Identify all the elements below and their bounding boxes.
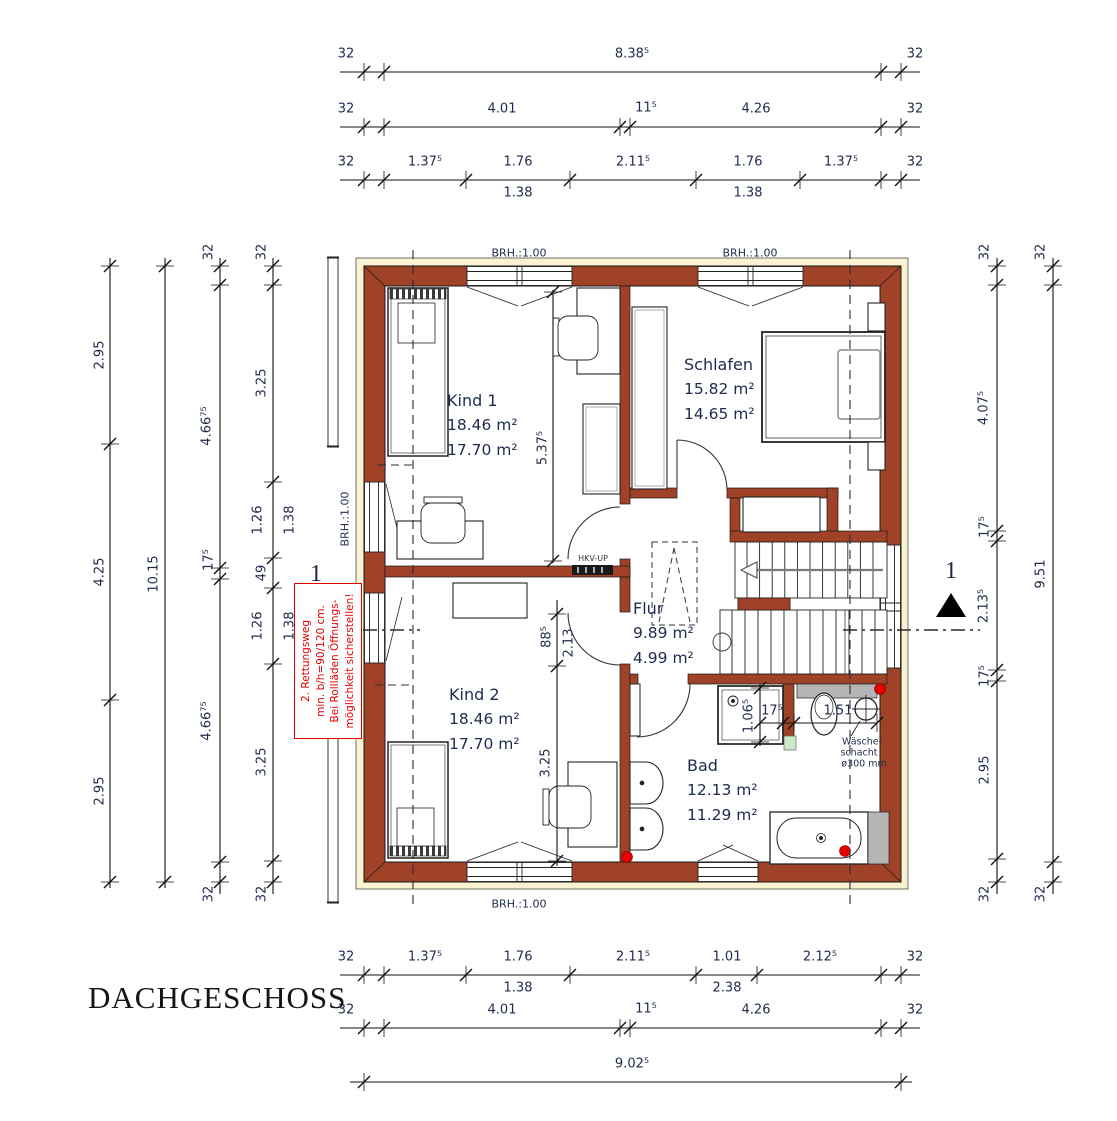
dim-label: 32 [338,951,355,964]
dim-label: 1.38 [284,506,297,535]
eave-detail [327,257,339,903]
room-area-net: 17.70 m² [449,732,520,757]
door-leaf-bad [630,684,640,736]
dim-label: 1.06⁵ [743,699,756,733]
chair [421,503,465,543]
sill-height-label: BRH.:1.00 [723,248,778,259]
pillow [397,808,434,846]
sill-height-label: BRH.:1.00 [492,248,547,259]
dim-label: 1.26 [252,612,265,641]
dim-label: 2.12⁵ [803,951,837,964]
dim-label: 17⁵ [761,705,783,718]
knee-wall [797,684,877,698]
room-name: Kind 2 [449,682,520,707]
nightstand [868,442,885,470]
room-area-gross: 15.82 m² [684,377,755,402]
dim-label: 17⁵ [979,516,992,538]
dim-label: 2.95 [94,777,107,806]
dim-label: 11⁵ [635,1003,657,1016]
room-label-schlafen: Schlafen 15.82 m² 14.65 m² [684,352,755,427]
dim-label: 17⁵ [203,549,216,571]
dim-label: 1.38 [734,187,763,200]
warning-line: 2. Rettungsweg [299,581,314,741]
dim-label: 4.01 [488,103,517,116]
duct-marker [784,736,796,750]
chair [558,316,598,360]
stair-spandrel-wall [738,598,790,610]
sideboard [743,497,820,532]
desk [453,583,527,618]
dim-label: 49 [256,565,269,582]
room-label-kind2: Kind 2 18.46 m² 17.70 m² [449,682,520,757]
room-area-gross: 18.46 m² [449,707,520,732]
dim-label: 32 [256,886,269,903]
dim-label: 1.76 [504,951,533,964]
dim-label: 32 [203,244,216,261]
room-label-kind1: Kind 1 18.46 m² 17.70 m² [447,388,518,463]
dim-label: 4.66⁷⁵ [201,406,214,445]
chair [549,786,591,828]
dim-label: 4.01 [488,1004,517,1017]
dim-label: 2.11⁵ [616,951,650,964]
section-marker-label: 1 [945,559,957,583]
tub-ledge [868,812,889,864]
dim-label: HKV-UP [578,555,608,563]
room-label-bad: Bad 12.13 m² 11.29 m² [687,753,758,828]
dim-label: 17⁵ [979,665,992,687]
dim-label: 2.95 [979,756,992,785]
pillow [398,303,435,343]
dim-label: 32 [979,244,992,261]
dim-label: 9.51 [1035,560,1048,589]
warning-line: möglichkeit sicherstellen! [343,581,358,741]
sill-height-label: BRH.:1.00 [492,899,547,910]
dim-label: 1.76 [734,156,763,169]
room-name: Schlafen [684,352,755,377]
dim-label: 1.37⁵ [824,156,858,169]
dim-label: 4.07⁵ [978,391,991,425]
room-area-gross: 18.46 m² [447,413,518,438]
dim-label: 2.13⁵ [978,589,991,623]
dim-label: 32 [338,156,355,169]
dim-label: 32 [256,244,269,261]
dim-label: 4.26 [742,103,771,116]
drawing-title: DACHGESCHOSS [88,980,346,1016]
warning-line: min. b/h=90/120 cm. [314,581,329,741]
dim-label: ø300 mm [841,759,886,769]
floorplan-sheet: 328.38⁵32324.0111⁵4.2632321.37⁵1.762.11⁵… [0,0,1117,1121]
dim-label: 32 [1035,886,1048,903]
bed-headboard [390,289,446,299]
room-area-net: 14.65 m² [684,402,755,427]
dim-label: 2.13 [563,629,576,658]
room-name: Flur [633,596,694,621]
room-area-net: 17.70 m² [447,438,518,463]
room-area-gross: 12.13 m² [687,778,758,803]
dim-label: 2.38 [713,982,742,995]
dim-label: 1.37⁵ [408,951,442,964]
room-area-net: 11.29 m² [687,803,758,828]
dim-label: 2.11⁵ [616,156,650,169]
dim-label: 2.95 [94,341,107,370]
dim-label: 3.25 [256,369,269,398]
dim-label: schacht [841,748,878,758]
room-name: Bad [687,753,758,778]
dim-label: 32 [203,886,216,903]
nightstand [868,303,885,331]
dim-label: 1.37⁵ [408,156,442,169]
rescue-route-warning: 2. Rettungsweg min. b/h=90/120 cm. Bei R… [294,583,362,739]
dim-label: 32 [1035,244,1048,261]
room-name: Kind 1 [447,388,518,413]
room-area-gross: 9.89 m² [633,621,694,646]
dim-label: 4.25 [94,558,107,587]
dim-label: 32 [979,886,992,903]
room-label-flur: Flur 9.89 m² 4.99 m² [633,596,694,671]
dim-label: 1.26 [252,506,265,535]
dim-label: 4.66⁷⁵ [201,701,214,740]
sink [630,762,663,804]
dim-label: 1.76 [504,156,533,169]
dim-label: 11⁵ [635,102,657,115]
dim-label: 3.25 [256,748,269,777]
section-marker-triangle [936,593,966,617]
dim-label: 4.26 [742,1004,771,1017]
dim-label: 32 [907,48,924,61]
sill-height-label: BRH.:1.00 [340,492,351,547]
room-area-net: 4.99 m² [633,646,694,671]
dim-label: 88⁵ [541,626,554,648]
dim-label: 5.37⁵ [537,431,550,465]
dim-label: 10.15 [148,555,161,592]
dim-label: 32 [907,1004,924,1017]
dim-label: 32 [338,48,355,61]
dim-label: 32 [907,156,924,169]
dim-label: 1.01 [713,951,742,964]
dim-label: 32 [907,951,924,964]
dim-label: Wäsche- [842,737,882,747]
dim-label: 32 [907,103,924,116]
dim-label: 1.38 [504,982,533,995]
sink [630,808,663,850]
dim-label: 1.38 [504,187,533,200]
dim-label: 1.51 [824,705,853,718]
bed-headboard [390,846,446,856]
dim-label: 32 [338,103,355,116]
dim-label: 8.38⁵ [615,48,649,61]
warning-line: Bei Rollläden Öffnungs- [328,581,343,741]
dim-label: 9.02⁵ [615,1058,649,1071]
dim-label: 3.25 [540,749,553,778]
